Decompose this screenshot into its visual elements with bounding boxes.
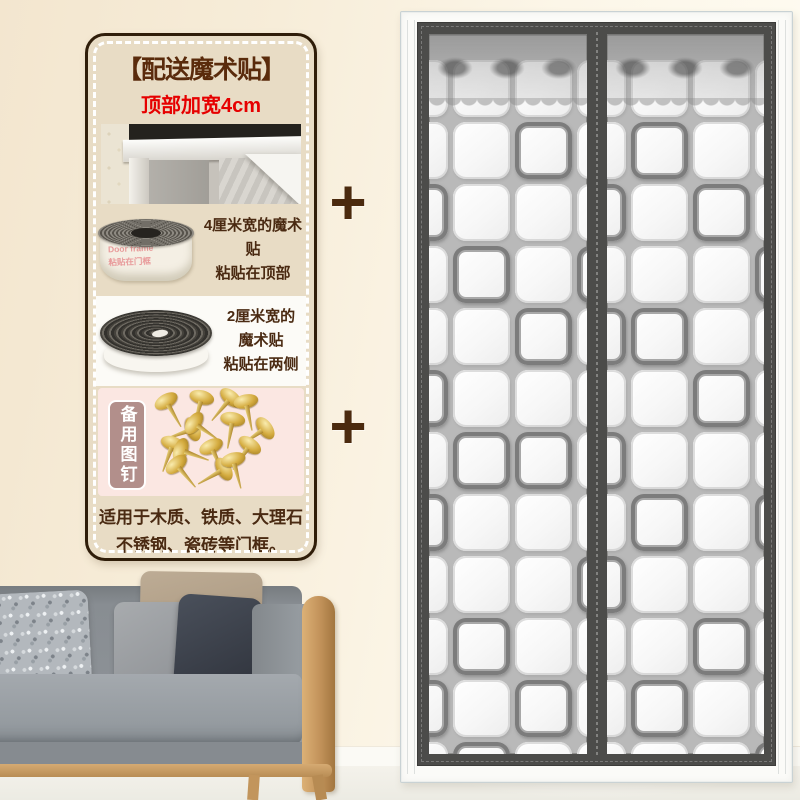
sofa-leg (247, 775, 260, 800)
quilt-square (453, 494, 510, 551)
footer-line1: 适用于木质、铁质、大理石 (88, 504, 314, 532)
quilt-square (607, 370, 626, 427)
item-row-velcro-4cm: Door frame 粘贴在门框 4厘米宽的魔术贴 粘贴在顶部 (88, 204, 314, 296)
gold-thumbtacks-image (150, 390, 298, 494)
quilt-square-dark (693, 618, 750, 675)
quilt-square (631, 246, 688, 303)
quilt-square (577, 184, 587, 241)
door-frame-seam (407, 20, 408, 774)
quilt-square (577, 494, 587, 551)
quilt-square (607, 618, 626, 675)
quilt-square-dark (577, 556, 587, 613)
quilt-square (577, 122, 587, 179)
quilt-square (577, 618, 587, 675)
quilt-square-dark (515, 432, 572, 489)
magnetic-screen-curtain (417, 22, 776, 766)
quilt-square (429, 742, 448, 754)
quilt-square-dark (453, 246, 510, 303)
quilt-square (577, 432, 587, 489)
quilt-square (607, 494, 626, 551)
quilt-square-dark (429, 370, 448, 427)
quilt-grid-left (429, 60, 587, 754)
quilt-square-dark (515, 680, 572, 737)
quilt-square (577, 680, 587, 737)
velcro-roll-coil (100, 310, 212, 356)
quilt-square (429, 308, 448, 365)
quilt-square (631, 432, 688, 489)
quilt-square (693, 680, 750, 737)
quilt-square (631, 742, 688, 754)
item-line2: 粘贴在顶部 (202, 262, 304, 286)
footer-line2: 不锈钢、瓷砖等门框。 (88, 532, 314, 560)
door-frame-seam (785, 20, 786, 774)
quilt-square-dark (453, 618, 510, 675)
item-line2: 粘贴在两侧 (220, 353, 302, 377)
item-row-velcro-2cm: 2厘米宽的魔术贴 粘贴在两侧 (96, 296, 306, 386)
quilt-square (755, 680, 765, 737)
lace-trim-right (607, 34, 765, 98)
quilt-square (631, 618, 688, 675)
quilt-square-dark (631, 494, 688, 551)
photo-door-opening (149, 160, 209, 204)
quilt-square (453, 370, 510, 427)
quilt-square-dark (453, 742, 510, 754)
quilt-square (755, 308, 765, 365)
item-text: 4厘米宽的魔术贴 粘贴在顶部 (202, 214, 304, 286)
panel-footer: 适用于木质、铁质、大理石 不锈钢、瓷砖等门框。 (88, 504, 314, 560)
quilt-square (515, 246, 572, 303)
quilt-square (693, 742, 750, 754)
quilt-square-dark (607, 184, 626, 241)
quilt-square (453, 556, 510, 613)
item-line1: 2厘米宽的魔术贴 (220, 305, 302, 353)
quilt-square (631, 556, 688, 613)
quilt-square (429, 122, 448, 179)
quilt-square (607, 742, 626, 754)
photo-curtain-fold (245, 154, 301, 204)
quilt-square (515, 184, 572, 241)
info-panel: 【配送魔术贴】 顶部加宽4cm Door frame 粘贴在门框 (85, 33, 317, 561)
quilt-square (453, 122, 510, 179)
quilt-square-dark (607, 308, 626, 365)
photo-wallpaper (101, 124, 129, 204)
quilt-square-dark (453, 432, 510, 489)
quilt-square (453, 184, 510, 241)
quilt-square (577, 370, 587, 427)
door-frame-seam (778, 20, 779, 774)
sofa-wood-rail (0, 764, 332, 777)
sofa-seat-cushion (0, 674, 302, 744)
quilt-square (453, 308, 510, 365)
quilt-square (755, 184, 765, 241)
quilt-square (515, 742, 572, 754)
curtain-panel-left (429, 34, 587, 754)
quilt-square (515, 494, 572, 551)
velcro-roll-4cm-image: Door frame 粘贴在门框 (98, 219, 194, 281)
quilt-square (607, 680, 626, 737)
door-frame-photo (101, 124, 301, 204)
curtain-panels (429, 34, 764, 754)
quilt-square-dark (631, 122, 688, 179)
quilt-square (693, 432, 750, 489)
quilt-square (515, 556, 572, 613)
quilt-square (631, 370, 688, 427)
product-image: 【配送魔术贴】 顶部加宽4cm Door frame 粘贴在门框 (0, 0, 800, 800)
quilt-square-dark (429, 680, 448, 737)
velcro-roll-top (98, 219, 194, 247)
quilt-square-dark (755, 742, 765, 754)
quilt-square-dark (631, 308, 688, 365)
roll-print-line2: 粘贴在门框 (108, 256, 151, 267)
quilt-square (693, 556, 750, 613)
quilt-square-dark (693, 184, 750, 241)
velcro-roll-2cm-image (100, 310, 212, 372)
plus-sign-1: + (317, 172, 379, 232)
quilt-square-dark (755, 494, 765, 551)
quilt-square (607, 122, 626, 179)
quilt-square (429, 432, 448, 489)
quilt-square (693, 494, 750, 551)
quilt-square (515, 618, 572, 675)
quilt-square (429, 246, 448, 303)
quilt-square (755, 556, 765, 613)
panel-subtitle: 顶部加宽4cm (88, 89, 314, 118)
quilt-square-dark (607, 556, 626, 613)
photo-side-molding (129, 158, 149, 204)
pins-section: 备用图钉 (98, 388, 304, 496)
quilt-square (755, 370, 765, 427)
quilt-square (429, 556, 448, 613)
curtain-panel-right (607, 34, 765, 754)
sofa-wood-arm (302, 596, 335, 792)
quilt-square (631, 184, 688, 241)
quilt-square (577, 742, 587, 754)
quilt-square (515, 370, 572, 427)
quilt-square (693, 246, 750, 303)
quilt-square (607, 246, 626, 303)
quilt-square-dark (631, 680, 688, 737)
quilt-square (693, 308, 750, 365)
quilt-square-dark (429, 184, 448, 241)
quilt-square (755, 432, 765, 489)
item-line1: 4厘米宽的魔术贴 (202, 214, 304, 262)
plus-sign-2: + (317, 396, 379, 456)
quilt-square (755, 618, 765, 675)
door-frame (400, 11, 793, 783)
door-frame-seam (414, 20, 415, 774)
quilt-square (453, 680, 510, 737)
quilt-square (693, 122, 750, 179)
quilt-square-dark (755, 246, 765, 303)
quilt-square-dark (577, 246, 587, 303)
item-text: 2厘米宽的魔术贴 粘贴在两侧 (220, 305, 302, 377)
pins-label: 备用图钉 (108, 400, 146, 490)
quilt-square-dark (515, 122, 572, 179)
quilt-grid-right (607, 60, 765, 754)
quilt-square (429, 618, 448, 675)
lace-trim-left (429, 34, 587, 98)
quilt-square-dark (693, 370, 750, 427)
quilt-square-dark (607, 432, 626, 489)
quilt-square (577, 308, 587, 365)
quilt-square-dark (515, 308, 572, 365)
quilt-square (755, 122, 765, 179)
quilt-square-dark (429, 494, 448, 551)
panel-title: 【配送魔术贴】 (96, 50, 306, 86)
